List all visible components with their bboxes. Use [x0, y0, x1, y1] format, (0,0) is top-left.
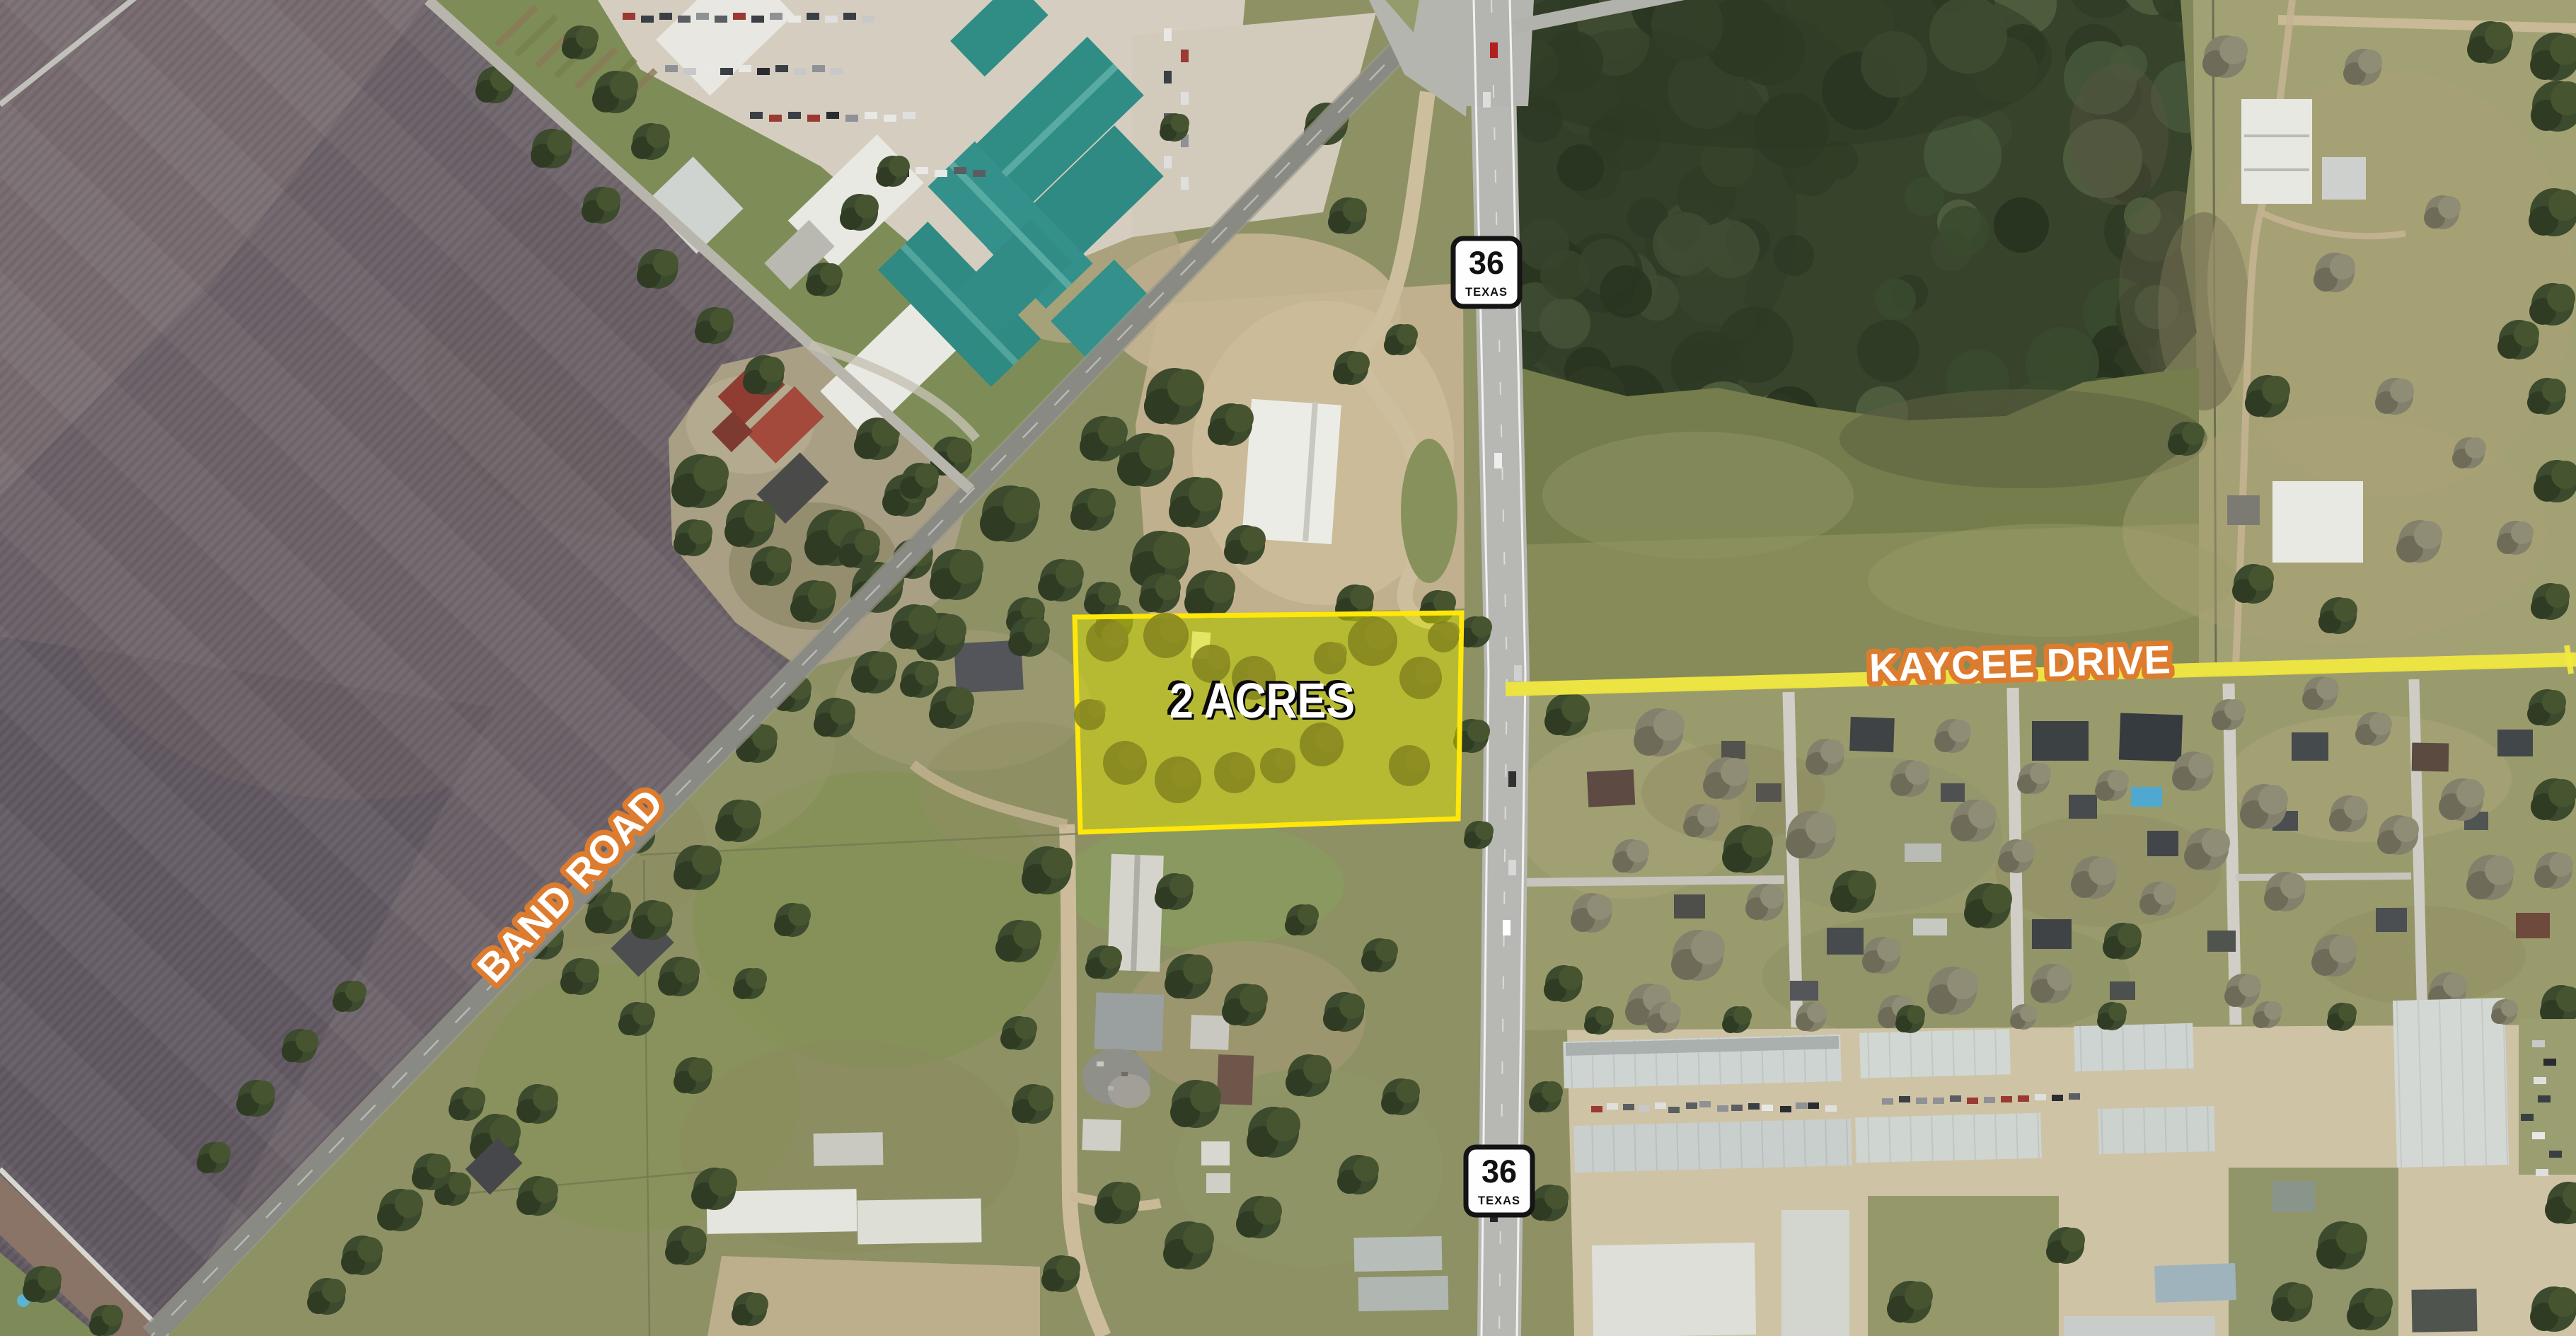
svg-text:36: 36 — [1482, 1153, 1517, 1190]
svg-text:TEXAS: TEXAS — [1478, 1194, 1520, 1207]
svg-text:36: 36 — [1469, 245, 1504, 281]
svg-text:2 ACRES: 2 ACRES — [1169, 673, 1355, 728]
svg-text:KAYCEE DRIVE: KAYCEE DRIVE — [1869, 637, 2172, 690]
svg-text:TEXAS: TEXAS — [1465, 286, 1508, 299]
